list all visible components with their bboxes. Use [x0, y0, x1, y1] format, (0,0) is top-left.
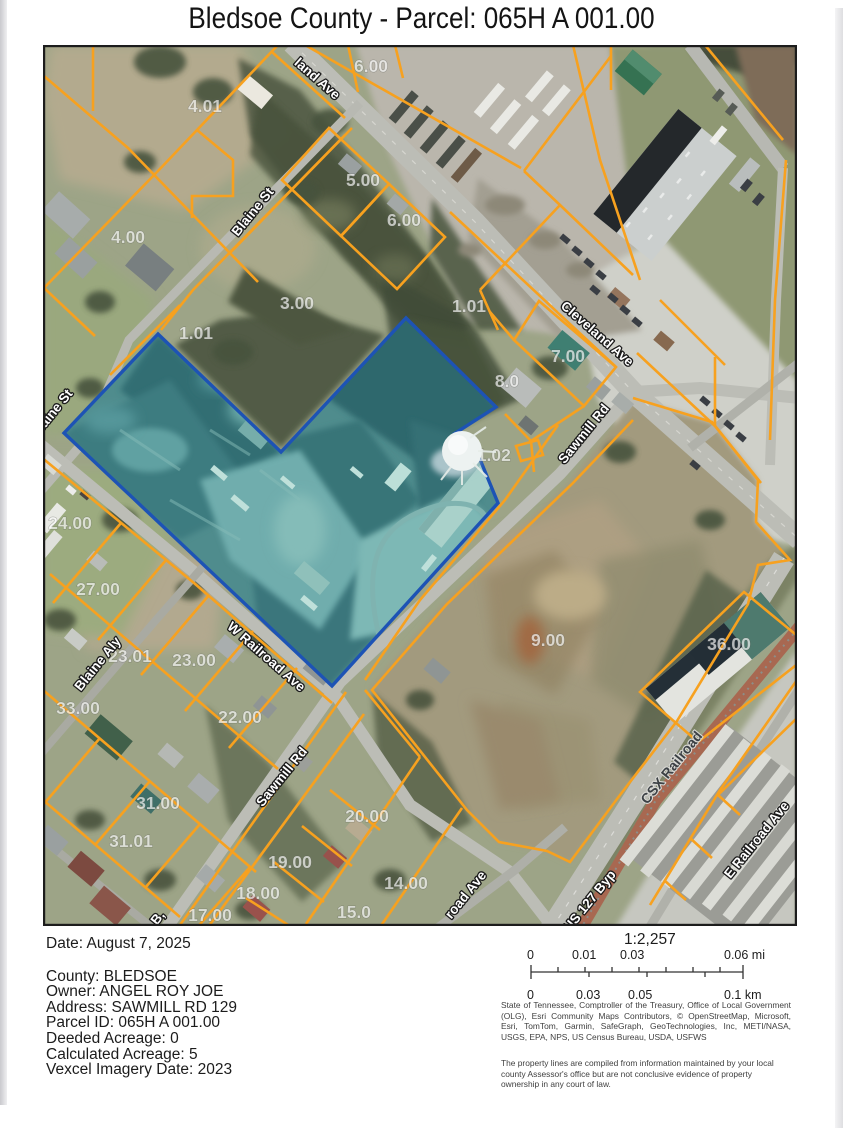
svg-text:5.00: 5.00	[346, 170, 380, 190]
svg-text:15.0: 15.0	[337, 902, 371, 922]
svg-text:33.00: 33.00	[56, 698, 100, 718]
svg-text:0: 0	[527, 948, 534, 962]
svg-text:31.00: 31.00	[136, 793, 180, 813]
svg-text:0.03: 0.03	[620, 948, 644, 962]
svg-text:4.00: 4.00	[111, 227, 145, 247]
svg-text:23.00: 23.00	[172, 650, 216, 670]
svg-text:17.00: 17.00	[188, 905, 232, 925]
svg-text:4.01: 4.01	[188, 96, 222, 116]
svg-text:31.01: 31.01	[109, 831, 153, 851]
svg-text:8.0: 8.0	[495, 371, 520, 391]
svg-text:6.00: 6.00	[387, 210, 421, 230]
svg-text:19.00: 19.00	[268, 852, 312, 872]
svg-text:6.00: 6.00	[354, 56, 388, 76]
svg-text:14.00: 14.00	[384, 873, 428, 893]
svg-text:18.00: 18.00	[236, 883, 280, 903]
svg-text:27.00: 27.00	[76, 579, 120, 599]
svg-text:9.00: 9.00	[531, 630, 565, 650]
svg-text:0.01: 0.01	[572, 948, 596, 962]
svg-text:1.01: 1.01	[179, 323, 213, 343]
svg-text:7.00: 7.00	[551, 346, 585, 366]
svg-text:3.00: 3.00	[280, 293, 314, 313]
svg-text:22.00: 22.00	[218, 707, 262, 727]
svg-text:20.00: 20.00	[345, 806, 389, 826]
svg-text:1.01: 1.01	[452, 296, 486, 316]
svg-text:24.00: 24.00	[48, 513, 92, 533]
svg-text:0.06 mi: 0.06 mi	[724, 948, 765, 962]
svg-text:36.00: 36.00	[707, 634, 751, 654]
